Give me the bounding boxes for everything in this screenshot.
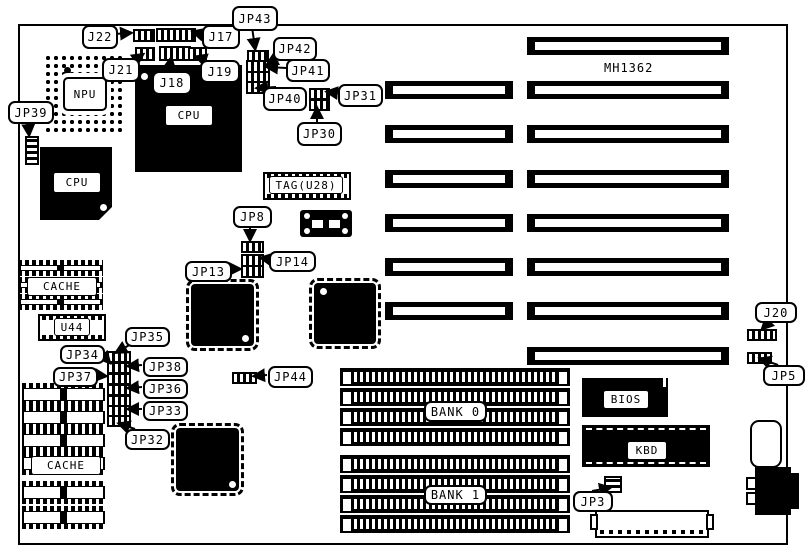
motherboard-diagram: MH1362 NPU CPU CPU TAG(U28) CACHE U44 CA…	[0, 0, 806, 548]
balloon-jp39: JP39	[8, 101, 54, 124]
balloon-jp31: JP31	[338, 84, 383, 107]
balloon-j19: J19	[200, 60, 240, 83]
balloon-jp41: JP41	[286, 59, 330, 82]
balloon-jp30: JP30	[297, 122, 342, 146]
balloon-jp44: JP44	[268, 366, 313, 388]
balloon-jp32: JP32	[125, 429, 170, 450]
balloon-j22: J22	[82, 25, 118, 49]
balloon-jp37: JP37	[53, 367, 98, 387]
balloon-j21: J21	[102, 58, 140, 82]
balloon-j20: J20	[755, 302, 797, 323]
balloon-jp3: JP3	[573, 491, 613, 512]
balloon-jp36: JP36	[143, 379, 188, 399]
balloon-jp34: JP34	[60, 345, 105, 364]
balloon-jp8: JP8	[233, 206, 272, 228]
balloon-jp14: JP14	[269, 251, 316, 272]
balloon-jp40: JP40	[263, 87, 307, 111]
balloon-jp43: JP43	[232, 6, 278, 31]
balloon-jp5: JP5	[763, 365, 805, 386]
bank0-label: BANK 0	[424, 401, 487, 422]
balloon-jp13: JP13	[185, 261, 232, 282]
leader-lines	[0, 0, 806, 548]
balloon-j18: J18	[152, 71, 192, 95]
bank1-label: BANK 1	[424, 485, 487, 505]
balloon-jp33: JP33	[143, 401, 188, 421]
balloon-jp42: JP42	[273, 37, 317, 61]
balloon-jp35: JP35	[125, 327, 170, 347]
balloon-jp38: JP38	[143, 357, 188, 377]
